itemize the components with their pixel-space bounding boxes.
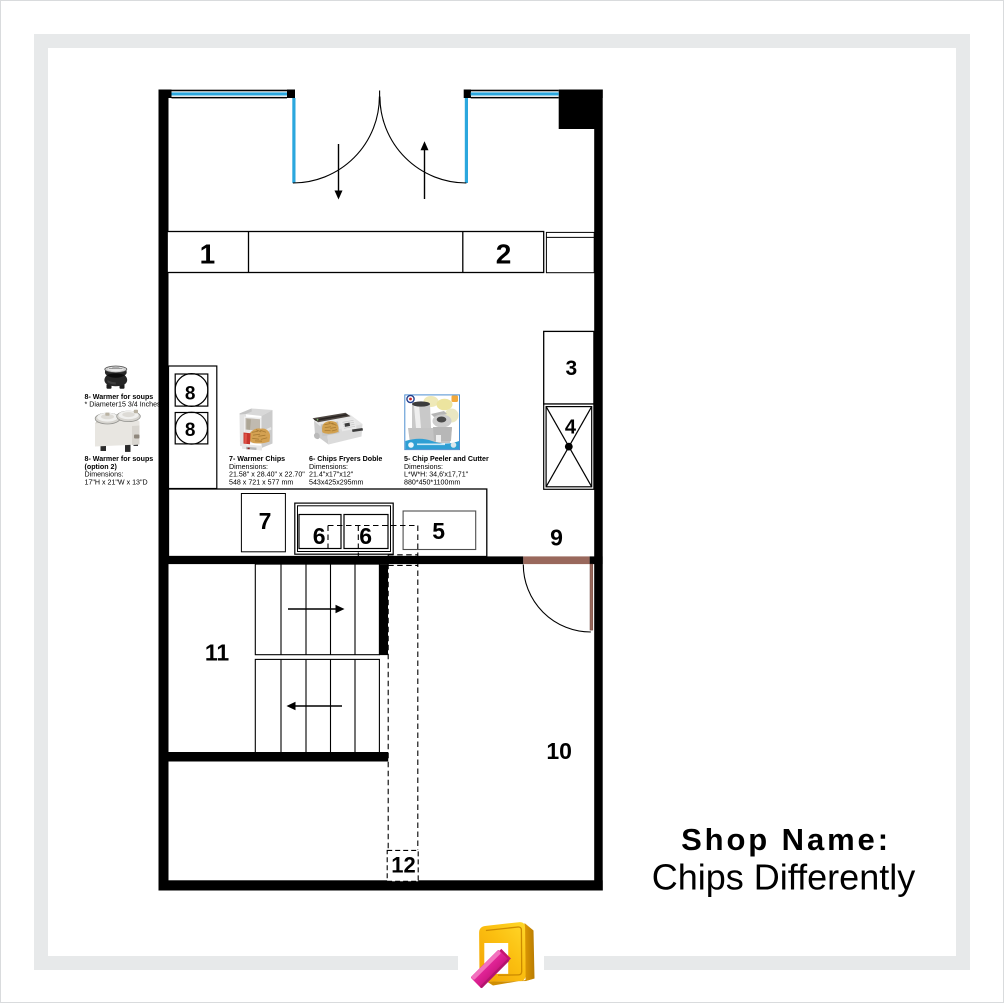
svg-text:2: 2 [496, 238, 512, 269]
svg-text:10: 10 [546, 738, 572, 764]
svg-text:9: 9 [550, 525, 563, 551]
svg-text:Shop Name:: Shop Name: [681, 822, 891, 857]
svg-text:8: 8 [185, 384, 196, 405]
svg-text:6- Chips Fryers Doble: 6- Chips Fryers Doble [309, 455, 382, 463]
svg-text:7: 7 [259, 508, 272, 534]
svg-text:8: 8 [185, 420, 196, 441]
svg-text:12: 12 [391, 853, 415, 878]
svg-text:548 x 721 x 577 mm: 548 x 721 x 577 mm [229, 478, 293, 486]
svg-text:5: 5 [432, 518, 445, 544]
svg-text:4: 4 [565, 417, 577, 439]
svg-text:Dimensions:: Dimensions: [85, 471, 124, 479]
svg-text:5- Chip Peeler and Cutter: 5- Chip Peeler and Cutter [404, 455, 489, 463]
svg-text:8- Warmer for soups: 8- Warmer for soups [85, 455, 154, 463]
svg-text:6: 6 [359, 523, 372, 549]
svg-text:Chips Differently: Chips Differently [652, 857, 915, 898]
svg-text:L*W*H: 34,6'x17,71": L*W*H: 34,6'x17,71" [404, 471, 469, 479]
svg-text:7- Warmer Chips: 7- Warmer Chips [229, 455, 285, 463]
svg-text:880*450*1100mm: 880*450*1100mm [404, 478, 460, 486]
svg-text:1: 1 [200, 238, 216, 269]
svg-text:* Diameter15 3/4 Inches: * Diameter15 3/4 Inches [85, 401, 162, 409]
svg-text:Dimensions:: Dimensions: [309, 463, 348, 471]
svg-text:6: 6 [313, 523, 326, 549]
svg-text:21.4"x17"x12": 21.4"x17"x12" [309, 471, 354, 479]
svg-text:8- Warmer for soups: 8- Warmer for soups [85, 393, 154, 401]
svg-text:21.58" x 28.40" x 22.70": 21.58" x 28.40" x 22.70" [229, 471, 305, 479]
svg-text:(option 2): (option 2) [85, 463, 118, 471]
svg-text:543x425x295mm: 543x425x295mm [309, 478, 364, 486]
svg-text:11: 11 [205, 640, 230, 666]
svg-text:17"H x 21"W x 13"D: 17"H x 21"W x 13"D [85, 478, 148, 486]
svg-text:3: 3 [566, 357, 578, 380]
svg-text:Dimensions:: Dimensions: [404, 463, 443, 471]
svg-text:Dimensions:: Dimensions: [229, 463, 268, 471]
